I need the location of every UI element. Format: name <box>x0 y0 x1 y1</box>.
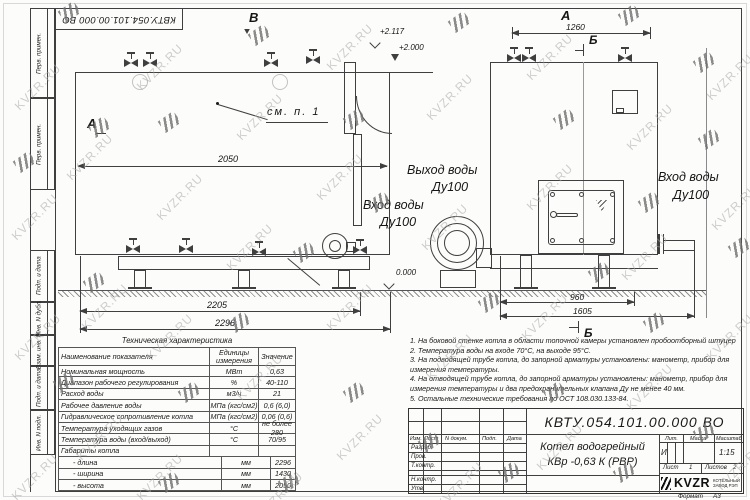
spec-header-unit: Единицы измерения <box>210 348 259 365</box>
dim-1605: 1605 <box>573 306 592 316</box>
spec-unit: мм <box>222 469 271 479</box>
view-b-marker: В <box>249 10 258 25</box>
spec-unit: мм <box>222 457 271 467</box>
spec-value: 70/95 <box>259 435 295 444</box>
col-data: Дата <box>507 436 522 442</box>
section-b-tick <box>575 50 583 51</box>
drawing-line <box>150 54 151 59</box>
drawing-line <box>182 238 190 240</box>
spec-name: Температура воды (вход/выход) <box>59 434 210 444</box>
foot-pad <box>128 287 152 289</box>
control-box-detail <box>616 108 624 113</box>
drawing-line <box>267 52 275 54</box>
draft-fan-inlet <box>444 230 470 256</box>
lit-value: И <box>661 448 667 457</box>
inlet-pipe-drop <box>694 240 695 318</box>
door-bolt <box>579 192 584 197</box>
sheets-label: Листов <box>705 465 727 471</box>
drawing-line <box>526 475 659 476</box>
door-bolt <box>610 238 615 243</box>
kvzr-logo-stripes-icon <box>661 477 671 490</box>
drawing-line <box>47 336 48 365</box>
spec-value: 0,6 (6,0) <box>259 401 295 410</box>
frame-box-podp-data-2: Подп. и дата <box>30 366 55 410</box>
drawing-line <box>683 434 684 463</box>
foot-pad <box>514 287 538 289</box>
sheet-value: 1 <box>689 465 692 471</box>
drawing-line <box>271 54 272 59</box>
dim-2205: 2205 <box>207 300 227 310</box>
spec-header-row: Наименование показателя Единицы измерени… <box>59 348 295 365</box>
drawing-line <box>701 463 702 473</box>
pump-flange-inner <box>329 240 341 252</box>
frame-box-perv-primen-2: Перв. примен. <box>30 98 55 190</box>
frame-box-inv-podl: Инв. N подл. <box>30 410 55 455</box>
spec-unit: МПа (кгс/см2) <box>210 412 259 422</box>
elevation-mark-icon <box>391 54 399 61</box>
col-podp: Подп. <box>482 436 497 442</box>
drawing-line <box>360 241 361 246</box>
frame-label: Инв. N подл. <box>31 411 47 454</box>
valve-icon <box>618 47 632 62</box>
outlet-pipe <box>353 134 362 226</box>
valve-icon <box>264 52 278 67</box>
valve-icon <box>126 238 140 253</box>
dim-2050: 2050 <box>218 154 238 164</box>
door-bolt <box>550 238 555 243</box>
drawing-line <box>621 47 629 49</box>
inlet-water-dn-right: Ду100 <box>673 188 709 202</box>
inlet-water-label-right: Вход воды <box>658 170 719 184</box>
valve-icon <box>306 49 320 64</box>
note-3: 3. На подводящей трубе котла, до запорно… <box>410 355 743 374</box>
drawing-line <box>47 411 48 454</box>
door-handle <box>556 213 578 217</box>
rotated-docnumber-text: КВТУ.054.101.00.000 ВО <box>62 14 176 25</box>
valve-icon <box>522 47 536 62</box>
spec-row: Рабочее давление водыМПа (кгс/см2)0,6 (6… <box>59 399 295 410</box>
leg <box>134 270 146 288</box>
fan-stand <box>440 270 476 288</box>
furnace-door <box>548 190 615 245</box>
top-edge-extension <box>390 72 433 73</box>
spec-row: Расход водым3/ч21 <box>59 388 295 399</box>
drawing-line <box>129 238 137 240</box>
drawing-line <box>146 52 154 54</box>
drawing-line <box>356 239 364 241</box>
foot-pad <box>232 287 256 289</box>
section-b-label-top: Б <box>589 33 598 47</box>
frame-label: Подп. и дата <box>31 367 47 409</box>
spec-header-name: Наименование показателя <box>59 348 210 365</box>
ground-hatch <box>58 291 706 297</box>
drawing-sheet: Перв. примен. Перв. примен. Подп. и дата… <box>0 0 750 500</box>
section-b-tick <box>569 327 578 328</box>
dim-line-2205 <box>80 311 360 312</box>
foot-pad <box>332 287 356 289</box>
drawing-line <box>47 99 48 189</box>
scale-value: 1:15 <box>719 448 735 457</box>
dim-line-1605 <box>500 316 694 317</box>
drawing-line <box>510 47 518 49</box>
drawing-line <box>127 52 135 54</box>
row-nkontr: Н.контр. <box>411 477 436 483</box>
spec-unit: мм <box>222 480 271 490</box>
drawing-line <box>514 49 515 54</box>
inlet-water-dn-mid: Ду100 <box>380 215 416 229</box>
frame-label: Подп. и дата <box>31 251 47 301</box>
format-label: Формат <box>678 493 703 500</box>
spec-unit <box>210 446 259 456</box>
outlet-water-dn: Ду100 <box>432 180 468 194</box>
sheet-label: Лист <box>663 465 678 471</box>
note-4: 4. На отводящей трубе котла, до запорной… <box>410 374 743 393</box>
dim-1260: 1260 <box>566 22 585 32</box>
frame-box-podp-data-1: Подп. и дата <box>30 250 55 302</box>
spec-unit: МПа (кгс/см2) <box>210 400 259 410</box>
elevation-0000: 0.000 <box>396 268 416 277</box>
outlet-water-label: Выход воды <box>407 163 477 177</box>
valve-icon <box>179 238 193 253</box>
spec-unit: °С <box>210 423 259 433</box>
row-utv: Утв. <box>411 486 425 492</box>
leg <box>238 270 250 288</box>
elevation-2000: +2.000 <box>399 43 424 52</box>
valve-icon <box>353 239 367 254</box>
drawing-line <box>313 51 314 56</box>
door-bolt <box>579 238 584 243</box>
spec-value: 2296 <box>271 458 295 467</box>
drawing-line <box>131 54 132 59</box>
scale-label: Масштаб <box>716 436 742 442</box>
row-tkontr: Т.контр. <box>411 463 435 469</box>
drawing-line <box>186 240 187 245</box>
dim-line-1260 <box>512 33 650 34</box>
frame-label: Перв. примен. <box>31 99 47 189</box>
elevation-2117: +2.117 <box>380 27 404 36</box>
spec-name: Номинальная мощность <box>59 366 210 376</box>
spec-unit: °С <box>210 434 259 444</box>
spec-value: 21 <box>259 389 295 398</box>
drawing-line <box>625 49 626 54</box>
see-note-underline <box>266 122 328 123</box>
lit-label: Лит. <box>665 436 678 442</box>
section-b-mark-bottom <box>578 321 579 333</box>
view-a-marker: А <box>561 8 570 23</box>
leg <box>520 255 532 288</box>
spec-name: - ширина <box>59 469 222 479</box>
format-value: А3 <box>713 493 721 500</box>
drawing-line <box>529 49 530 54</box>
vent-cap <box>272 74 288 90</box>
drawing-line <box>675 442 676 463</box>
drawing-line <box>133 240 134 245</box>
drawing-line <box>309 49 317 51</box>
spec-name: Гидравлическое сопротивление котла <box>59 412 210 422</box>
kvzr-logo-text: KVZR <box>674 476 710 490</box>
drawing-line <box>525 47 533 49</box>
note-5: 5. Остальные технические требования по О… <box>410 394 743 404</box>
ext-line <box>80 256 81 316</box>
valve-icon <box>507 47 521 62</box>
ext-line <box>500 256 501 320</box>
col-ndokum: N докум. <box>445 436 468 442</box>
drawing-line <box>47 251 48 301</box>
valve-icon <box>124 52 138 67</box>
section-b-mark-top <box>583 44 584 56</box>
drawing-line <box>714 434 715 463</box>
foot-pad <box>592 287 616 289</box>
door-bolt <box>610 192 615 197</box>
drawing-line <box>47 367 48 409</box>
leg <box>338 270 350 288</box>
dim-960: 960 <box>570 292 584 302</box>
row-prov: Пров. <box>411 454 427 460</box>
spec-name: Температура уходящих газов <box>59 423 210 433</box>
drawing-line <box>667 442 668 463</box>
inlet-pipe <box>664 250 694 251</box>
drawing-line <box>409 421 526 422</box>
format-note: Формат А3 <box>678 493 721 500</box>
